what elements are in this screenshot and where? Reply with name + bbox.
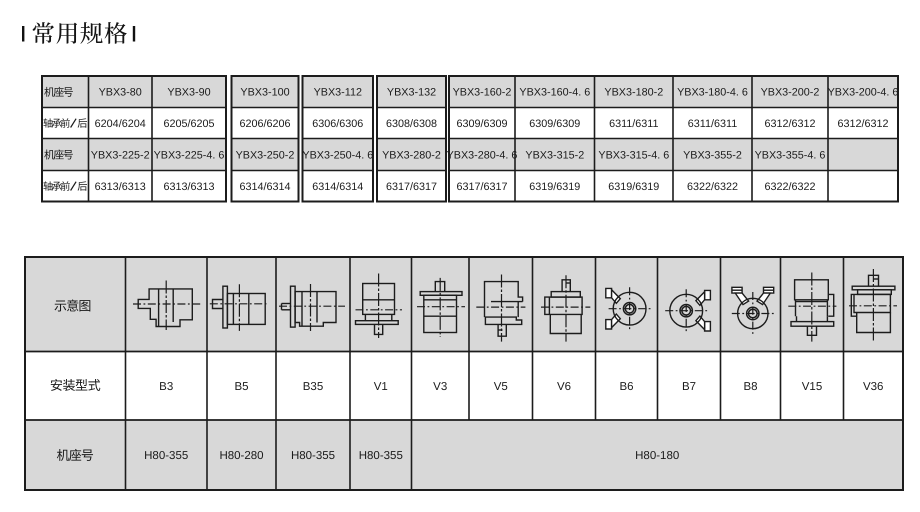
svg-text:H80-355: H80-355 (291, 450, 335, 462)
svg-text:6322/6322: 6322/6322 (764, 181, 815, 193)
svg-text:YBX3-250-2: YBX3-250-2 (236, 149, 295, 161)
svg-text:H80-355: H80-355 (144, 450, 188, 462)
svg-text:YBX3-225-2: YBX3-225-2 (91, 149, 150, 161)
svg-text:YBX3-160-2: YBX3-160-2 (453, 87, 512, 99)
svg-text:6314/6314: 6314/6314 (312, 181, 363, 193)
svg-text:YBX3-160-4. 6: YBX3-160-4. 6 (519, 87, 590, 99)
svg-text:6312/6312: 6312/6312 (837, 118, 888, 130)
svg-text:6313/6313: 6313/6313 (163, 181, 214, 193)
svg-text:6204/6204: 6204/6204 (95, 118, 146, 130)
svg-text:6319/6319: 6319/6319 (608, 181, 659, 193)
svg-text:6314/6314: 6314/6314 (239, 181, 290, 193)
svg-text:6322/6322: 6322/6322 (687, 181, 738, 193)
svg-text:YBX3-315-4. 6: YBX3-315-4. 6 (598, 149, 669, 161)
svg-text:YBX3-132: YBX3-132 (387, 87, 436, 99)
svg-text:YBX3-225-4. 6: YBX3-225-4. 6 (154, 149, 225, 161)
svg-text:B5: B5 (234, 381, 248, 393)
svg-text:B8: B8 (743, 381, 757, 393)
svg-text:YBX3-200-4. 6: YBX3-200-4. 6 (828, 87, 899, 99)
svg-text:V3: V3 (433, 381, 447, 393)
svg-text:V1: V1 (374, 381, 388, 393)
svg-text:6312/6312: 6312/6312 (764, 118, 815, 130)
svg-text:YBX3-280-2: YBX3-280-2 (382, 149, 441, 161)
svg-text:V36: V36 (863, 381, 883, 393)
svg-text:YBX3-180-4. 6: YBX3-180-4. 6 (677, 87, 748, 99)
svg-text:YBX3-100: YBX3-100 (240, 87, 289, 99)
svg-text:YBX3-250-4. 6: YBX3-250-4. 6 (302, 149, 373, 161)
svg-text:V6: V6 (557, 381, 571, 393)
svg-text:6306/6306: 6306/6306 (312, 118, 363, 130)
svg-text:6313/6313: 6313/6313 (95, 181, 146, 193)
svg-text:B6: B6 (619, 381, 633, 393)
svg-text:6308/6308: 6308/6308 (386, 118, 437, 130)
svg-text:YBX3-355-4. 6: YBX3-355-4. 6 (755, 149, 826, 161)
svg-text:6309/6309: 6309/6309 (456, 118, 507, 130)
svg-text:YBX3-315-2: YBX3-315-2 (525, 149, 584, 161)
svg-text:B7: B7 (682, 381, 696, 393)
svg-text:YBX3-90: YBX3-90 (167, 87, 210, 99)
svg-text:YBX3-180-2: YBX3-180-2 (604, 87, 663, 99)
svg-text:6317/6317: 6317/6317 (456, 181, 507, 193)
svg-text:6309/6309: 6309/6309 (529, 118, 580, 130)
svg-text:H80-280: H80-280 (219, 450, 263, 462)
svg-text:6319/6319: 6319/6319 (529, 181, 580, 193)
svg-text:YBX3-200-2: YBX3-200-2 (761, 87, 820, 99)
svg-text:6311/6311: 6311/6311 (609, 118, 658, 130)
svg-text:YBX3-355-2: YBX3-355-2 (683, 149, 742, 161)
svg-text:6206/6206: 6206/6206 (239, 118, 290, 130)
svg-text:YBX3-280-4. 6: YBX3-280-4. 6 (447, 149, 518, 161)
svg-text:6205/6205: 6205/6205 (163, 118, 214, 130)
svg-text:B3: B3 (159, 381, 173, 393)
svg-text:6311/6311: 6311/6311 (688, 118, 737, 130)
svg-text:YBX3-112: YBX3-112 (314, 87, 362, 99)
svg-text:6317/6317: 6317/6317 (386, 181, 437, 193)
svg-text:V15: V15 (802, 381, 822, 393)
svg-text:H80-355: H80-355 (359, 450, 403, 462)
svg-text:B35: B35 (303, 381, 323, 393)
svg-text:YBX3-80: YBX3-80 (99, 87, 142, 99)
svg-text:V5: V5 (494, 381, 508, 393)
svg-text:H80-180: H80-180 (635, 450, 679, 462)
